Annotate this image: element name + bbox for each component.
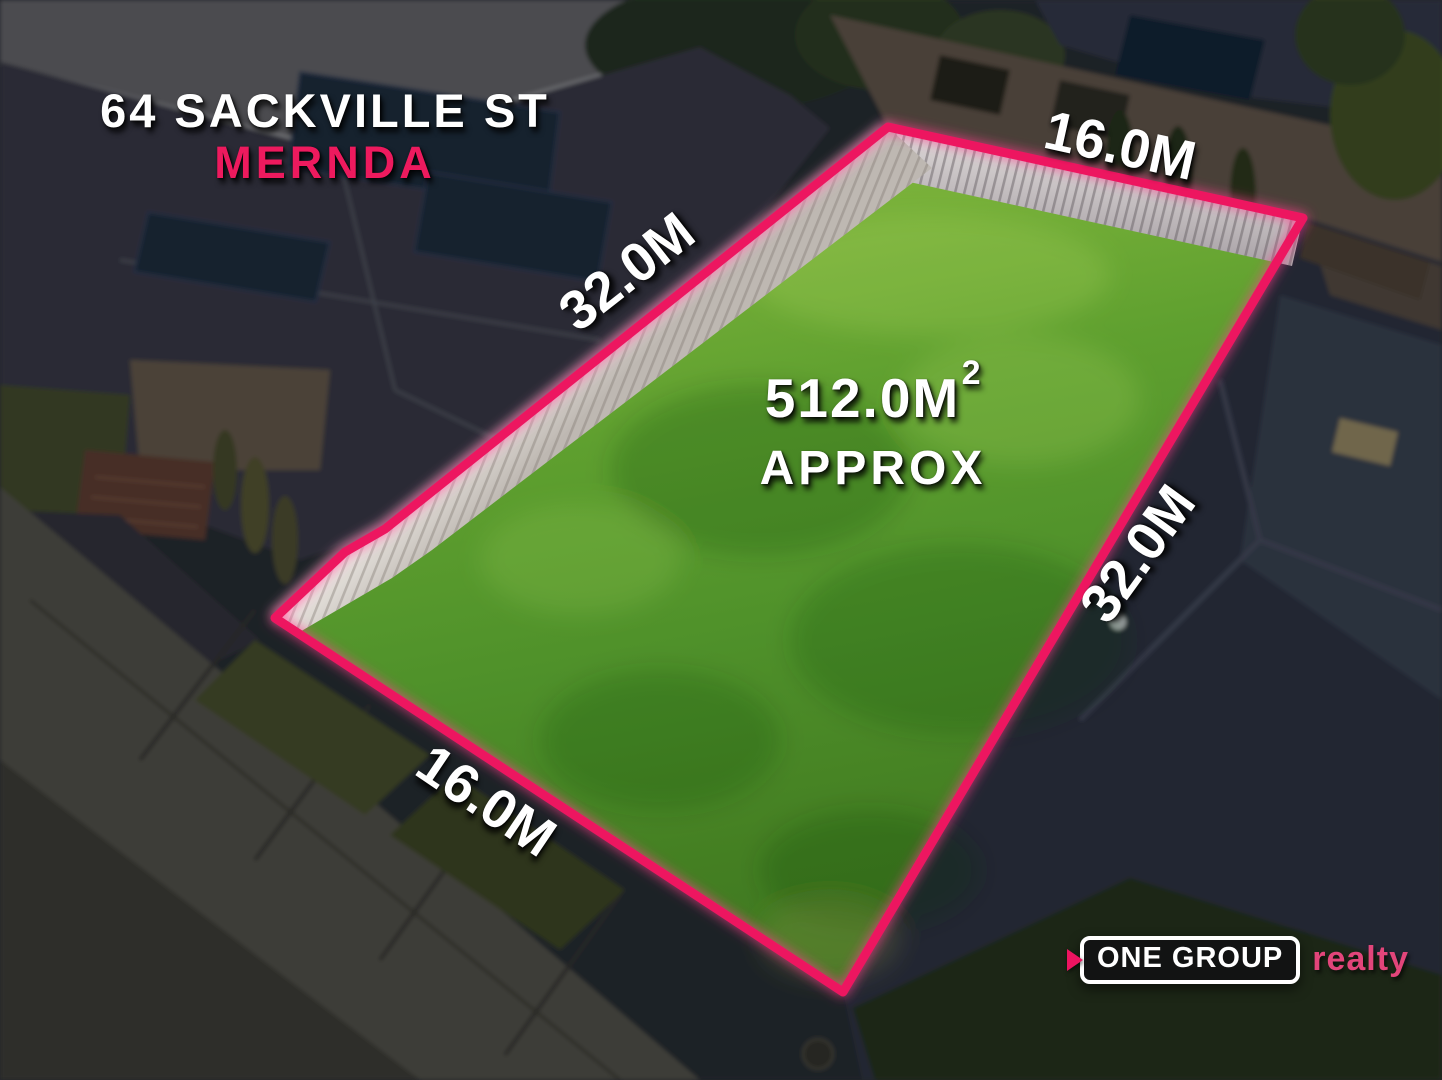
agency-logo: ONE GROUP realty — [1080, 936, 1409, 984]
address-block: 64 SACKVILLE ST MERNDA — [100, 86, 550, 187]
agency-name: ONE GROUP — [1097, 942, 1283, 974]
listing-image: 64 SACKVILLE ST MERNDA 16.0M 32.0M 32.0M… — [0, 0, 1442, 1080]
area-value: 512.0M — [765, 367, 960, 429]
play-arrow-icon — [1067, 949, 1083, 971]
area-superscript: 2 — [962, 353, 983, 391]
area-label: 512.0M2 — [760, 370, 987, 428]
area-block: 512.0M2 APPROX — [760, 370, 987, 494]
area-approx-label: APPROX — [760, 444, 987, 494]
suburb-label: MERNDA — [100, 139, 550, 186]
address-title: 64 SACKVILLE ST — [100, 86, 550, 135]
agency-suffix: realty — [1312, 940, 1409, 979]
agency-logo-box: ONE GROUP — [1080, 936, 1300, 984]
